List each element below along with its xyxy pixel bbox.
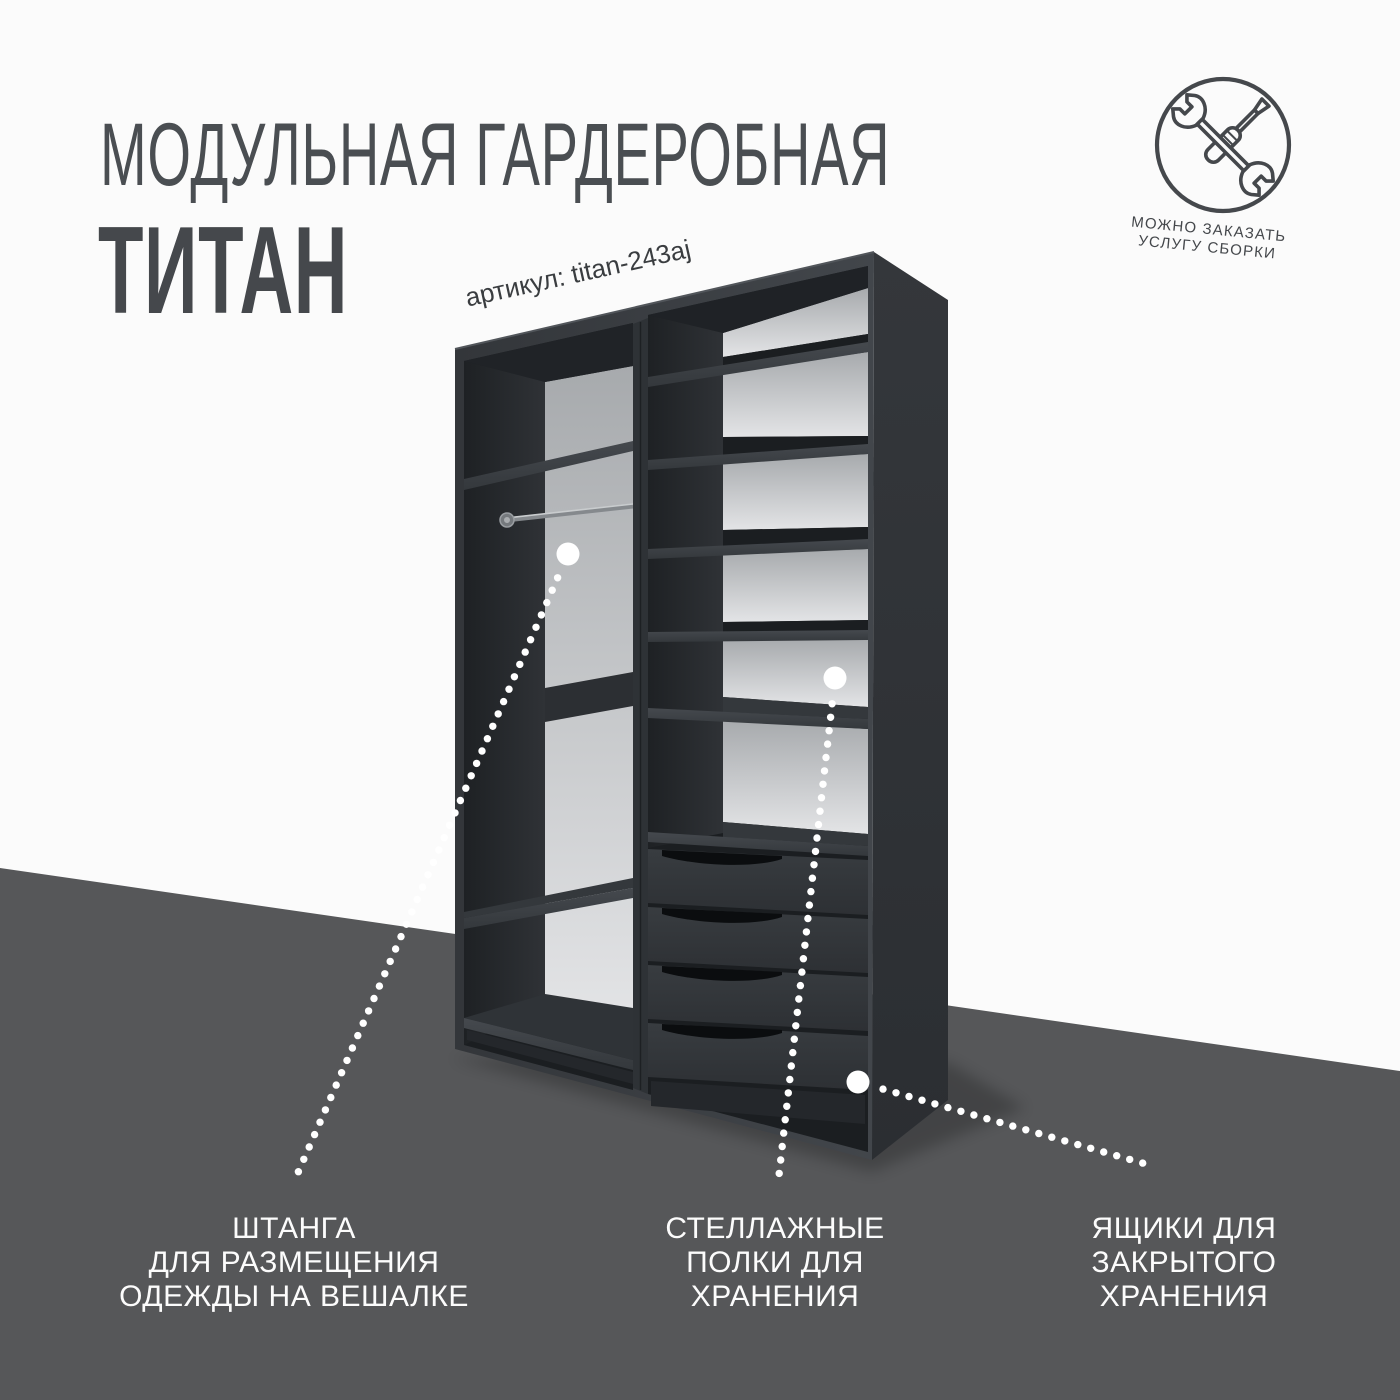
right-module [648,266,868,1152]
callout-hanging-rod: ШТАНГА ДЛЯ РАЗМЕЩЕНИЯ ОДЕЖДЫ НА ВЕШАЛКЕ [64,1212,524,1314]
callout-line: ЗАКРЫТОГО [984,1246,1384,1280]
callout-line: СТЕЛЛАЖНЫЕ [575,1212,975,1246]
callout-shelves: СТЕЛЛАЖНЫЕ ПОЛКИ ДЛЯ ХРАНЕНИЯ [575,1212,975,1314]
callout-line: ЯЩИКИ ДЛЯ [984,1212,1384,1246]
callout-line: ХРАНЕНИЯ [984,1280,1384,1314]
callout-line: ПОЛКИ ДЛЯ [575,1246,975,1280]
product-name: ТИТАН [98,209,348,333]
callout-line: ШТАНГА [64,1212,524,1246]
callout-line: ОДЕЖДЫ НА ВЕШАЛКЕ [64,1280,524,1314]
callout-line: ДЛЯ РАЗМЕЩЕНИЯ [64,1246,524,1280]
callout-drawers: ЯЩИКИ ДЛЯ ЗАКРЫТОГО ХРАНЕНИЯ [984,1212,1384,1314]
wrench-screwdriver-icon [1150,72,1296,218]
wardrobe-body [455,252,948,1160]
left-module [464,323,633,1090]
product-infographic: МОДУЛЬНАЯ ГАРДЕРОБНАЯ ТИТАН артикул: tit… [0,0,1400,1400]
side-panel [872,252,948,1160]
page-title: МОДУЛЬНАЯ ГАРДЕРОБНАЯ [100,110,890,199]
callout-line: ХРАНЕНИЯ [575,1280,975,1314]
